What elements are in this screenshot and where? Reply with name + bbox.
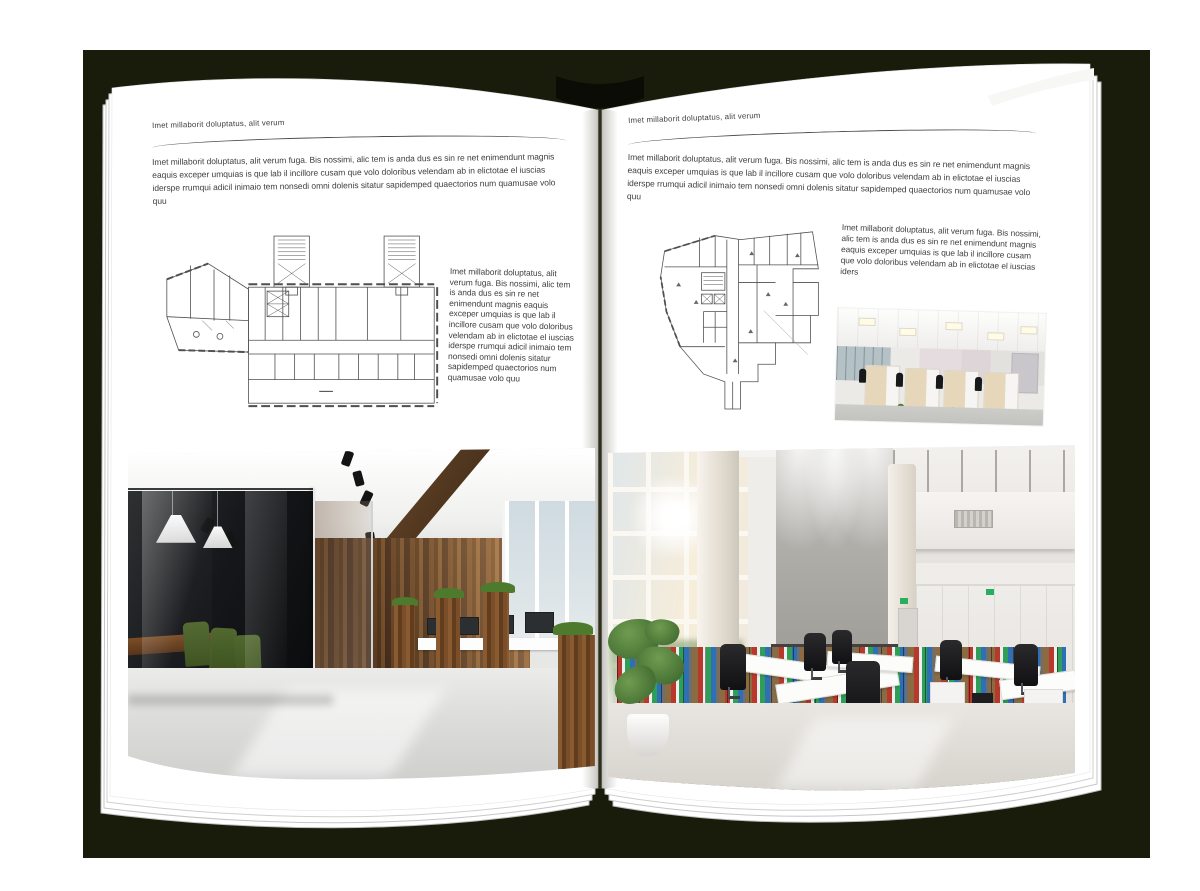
left-side-text: Imet millaborit doluptatus, alit verum f… — [448, 266, 576, 385]
light-panel — [1020, 327, 1037, 335]
office-chair — [975, 377, 982, 391]
vent-grille — [954, 510, 993, 528]
glass-reflection — [245, 491, 287, 698]
spine-top-shadow — [556, 76, 644, 108]
office-chair — [859, 369, 866, 383]
glass-partition — [315, 501, 373, 688]
planter-grass — [434, 588, 464, 598]
plan-outline — [661, 232, 819, 409]
floor-shadow — [128, 695, 333, 705]
photo-office-atrium — [608, 443, 1075, 795]
plan-door-marks — [676, 251, 800, 362]
right-intro-paragraph: Imet millaborit doluptatus, alit verum f… — [627, 151, 1040, 212]
left-wing — [167, 264, 249, 352]
black-chair — [1014, 644, 1038, 686]
magazine-spread-mockup: Imet millaborit doluptatus, alit verum I… — [0, 0, 1200, 891]
floorplan-left — [157, 226, 447, 428]
photo-office-loft — [128, 448, 595, 782]
office-chair — [896, 372, 903, 386]
plan-rooms — [665, 233, 819, 409]
black-chair — [940, 640, 962, 680]
main-block — [248, 284, 437, 406]
wood-planter-large — [558, 635, 595, 769]
right-side-text: Imet millaborit doluptatus, alit verum f… — [840, 222, 1044, 284]
cubicle-partition — [864, 365, 900, 411]
light-panel — [858, 318, 875, 326]
lamp-cord — [217, 491, 218, 528]
light-panel — [946, 322, 963, 330]
planter-grass — [553, 622, 593, 635]
black-chair — [832, 630, 852, 664]
black-chair — [720, 644, 746, 690]
glass-reflection — [142, 491, 212, 698]
photo-office-cubicles — [835, 308, 1046, 426]
left-intro-paragraph: Imet millaborit doluptatus, alit verum f… — [152, 150, 569, 208]
stair-towers — [274, 236, 419, 295]
light-panel — [900, 328, 917, 336]
floorplan-right — [647, 218, 832, 416]
ceiling — [837, 308, 1046, 352]
glass-top-rail — [128, 488, 315, 490]
office-chair — [936, 375, 943, 389]
light-panel — [987, 332, 1004, 340]
concrete-feature-wall — [776, 443, 893, 644]
glass-railing — [893, 450, 1075, 495]
monitor — [525, 612, 554, 633]
black-chair — [804, 633, 826, 671]
plant-pot — [627, 714, 669, 756]
